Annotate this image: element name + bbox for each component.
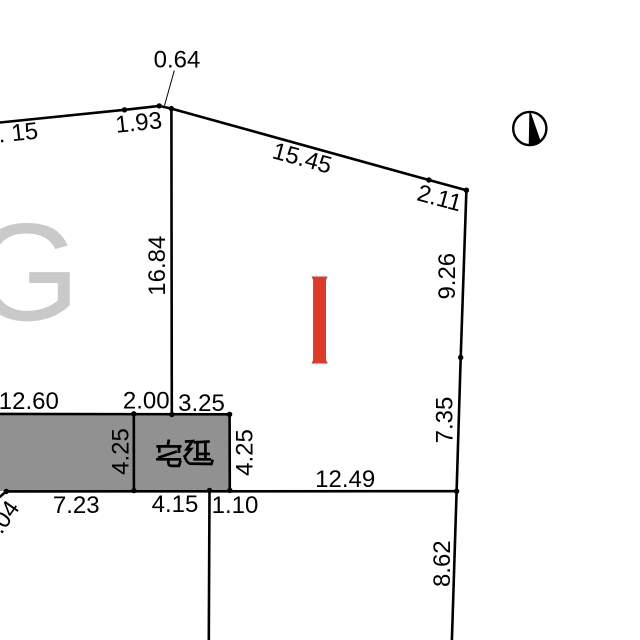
svg-text:7.35: 7.35	[431, 397, 458, 444]
svg-text:. 15: . 15	[0, 118, 39, 149]
svg-text:7.23: 7.23	[53, 492, 100, 519]
svg-text:4.15: 4.15	[152, 491, 199, 518]
svg-text:2.00: 2.00	[123, 388, 170, 415]
svg-text:1.10: 1.10	[212, 492, 259, 519]
svg-text:G: G	[0, 195, 80, 350]
svg-text:0.64: 0.64	[154, 46, 201, 73]
svg-text:4.25: 4.25	[232, 429, 259, 476]
svg-text:3.25: 3.25	[178, 390, 225, 417]
svg-text:12.60: 12.60	[0, 388, 59, 415]
svg-text:1.93: 1.93	[114, 107, 163, 139]
svg-text:12.49: 12.49	[315, 466, 375, 493]
svg-text:16.84: 16.84	[144, 236, 171, 296]
svg-text:8.62: 8.62	[429, 540, 456, 587]
svg-text:9.26: 9.26	[434, 253, 461, 300]
svg-text:4.25: 4.25	[108, 428, 135, 475]
